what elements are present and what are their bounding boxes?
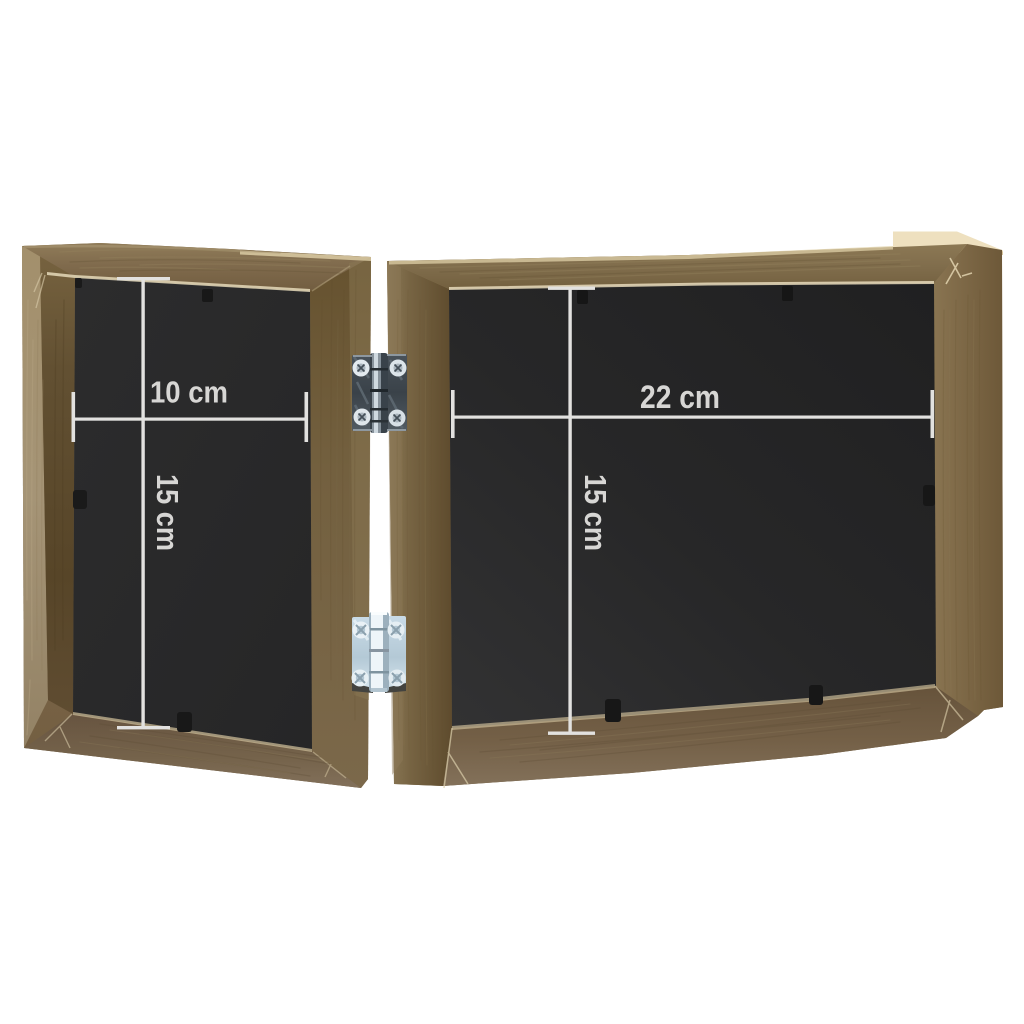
- svg-text:10 cm: 10 cm: [150, 375, 228, 410]
- svg-text:15 cm: 15 cm: [578, 474, 613, 551]
- svg-text:22 cm: 22 cm: [640, 379, 720, 415]
- svg-text:15 cm: 15 cm: [150, 474, 185, 551]
